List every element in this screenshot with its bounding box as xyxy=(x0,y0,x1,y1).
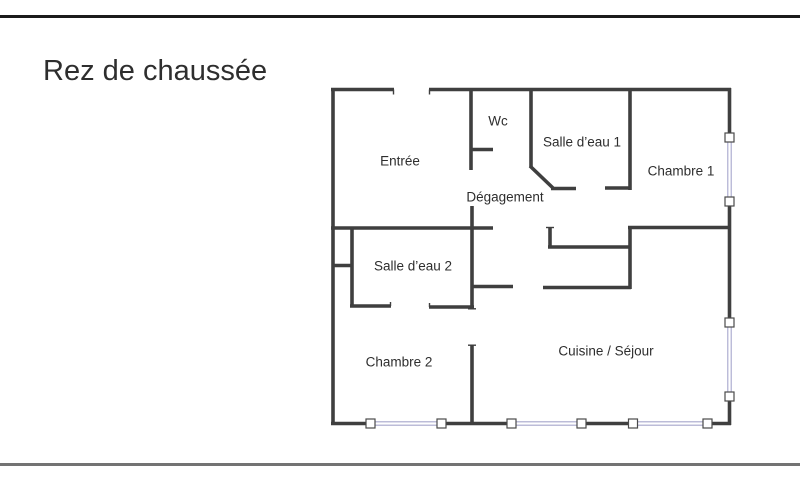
slide: Rez de chaussée EntréeWcSalle d’eau 1Cha… xyxy=(0,0,800,480)
window-cap xyxy=(725,197,734,206)
room-label-salle-deau-2: Salle d’eau 2 xyxy=(374,259,452,274)
window-cap xyxy=(577,419,586,428)
room-label-chambre-2: Chambre 2 xyxy=(366,355,433,370)
window-cap xyxy=(725,133,734,142)
wall-segment xyxy=(530,166,553,188)
window-cap xyxy=(507,419,516,428)
room-label-salle-deau-1: Salle d’eau 1 xyxy=(543,135,621,150)
room-label-chambre-1: Chambre 1 xyxy=(648,164,715,179)
window-cap xyxy=(629,419,638,428)
room-label-degagement: Dégagement xyxy=(466,190,544,205)
window-cap xyxy=(703,419,712,428)
window-cap xyxy=(725,318,734,327)
room-label-wc: Wc xyxy=(488,114,508,129)
window-cap xyxy=(437,419,446,428)
window-cap xyxy=(725,392,734,401)
room-label-cuisine-sejour: Cuisine / Séjour xyxy=(558,344,654,359)
floorplan-drawing: EntréeWcSalle d’eau 1Chambre 1Dégagement… xyxy=(0,0,800,480)
room-label-entree: Entrée xyxy=(380,154,420,169)
window-cap xyxy=(366,419,375,428)
bottom-border-line xyxy=(0,463,800,466)
